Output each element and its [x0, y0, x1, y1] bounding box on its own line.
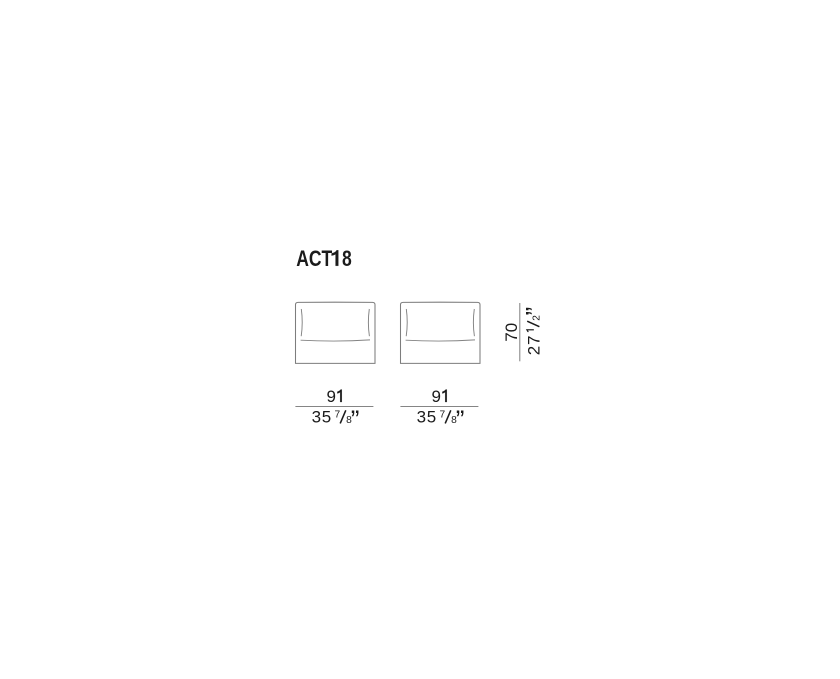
svg-text:ACT18: ACT18 — [296, 246, 352, 271]
svg-text:9: 9 — [327, 387, 336, 406]
svg-text:”: ” — [456, 405, 465, 435]
svg-text:70: 70 — [502, 323, 521, 342]
svg-text:”: ” — [520, 307, 550, 316]
svg-text:7: 7 — [335, 410, 341, 421]
svg-text:”: ” — [351, 405, 360, 435]
svg-text:9: 9 — [432, 387, 441, 406]
svg-text:27: 27 — [524, 335, 543, 355]
svg-text:35: 35 — [312, 408, 332, 427]
svg-text:35: 35 — [417, 408, 437, 427]
svg-text:7: 7 — [440, 410, 446, 421]
